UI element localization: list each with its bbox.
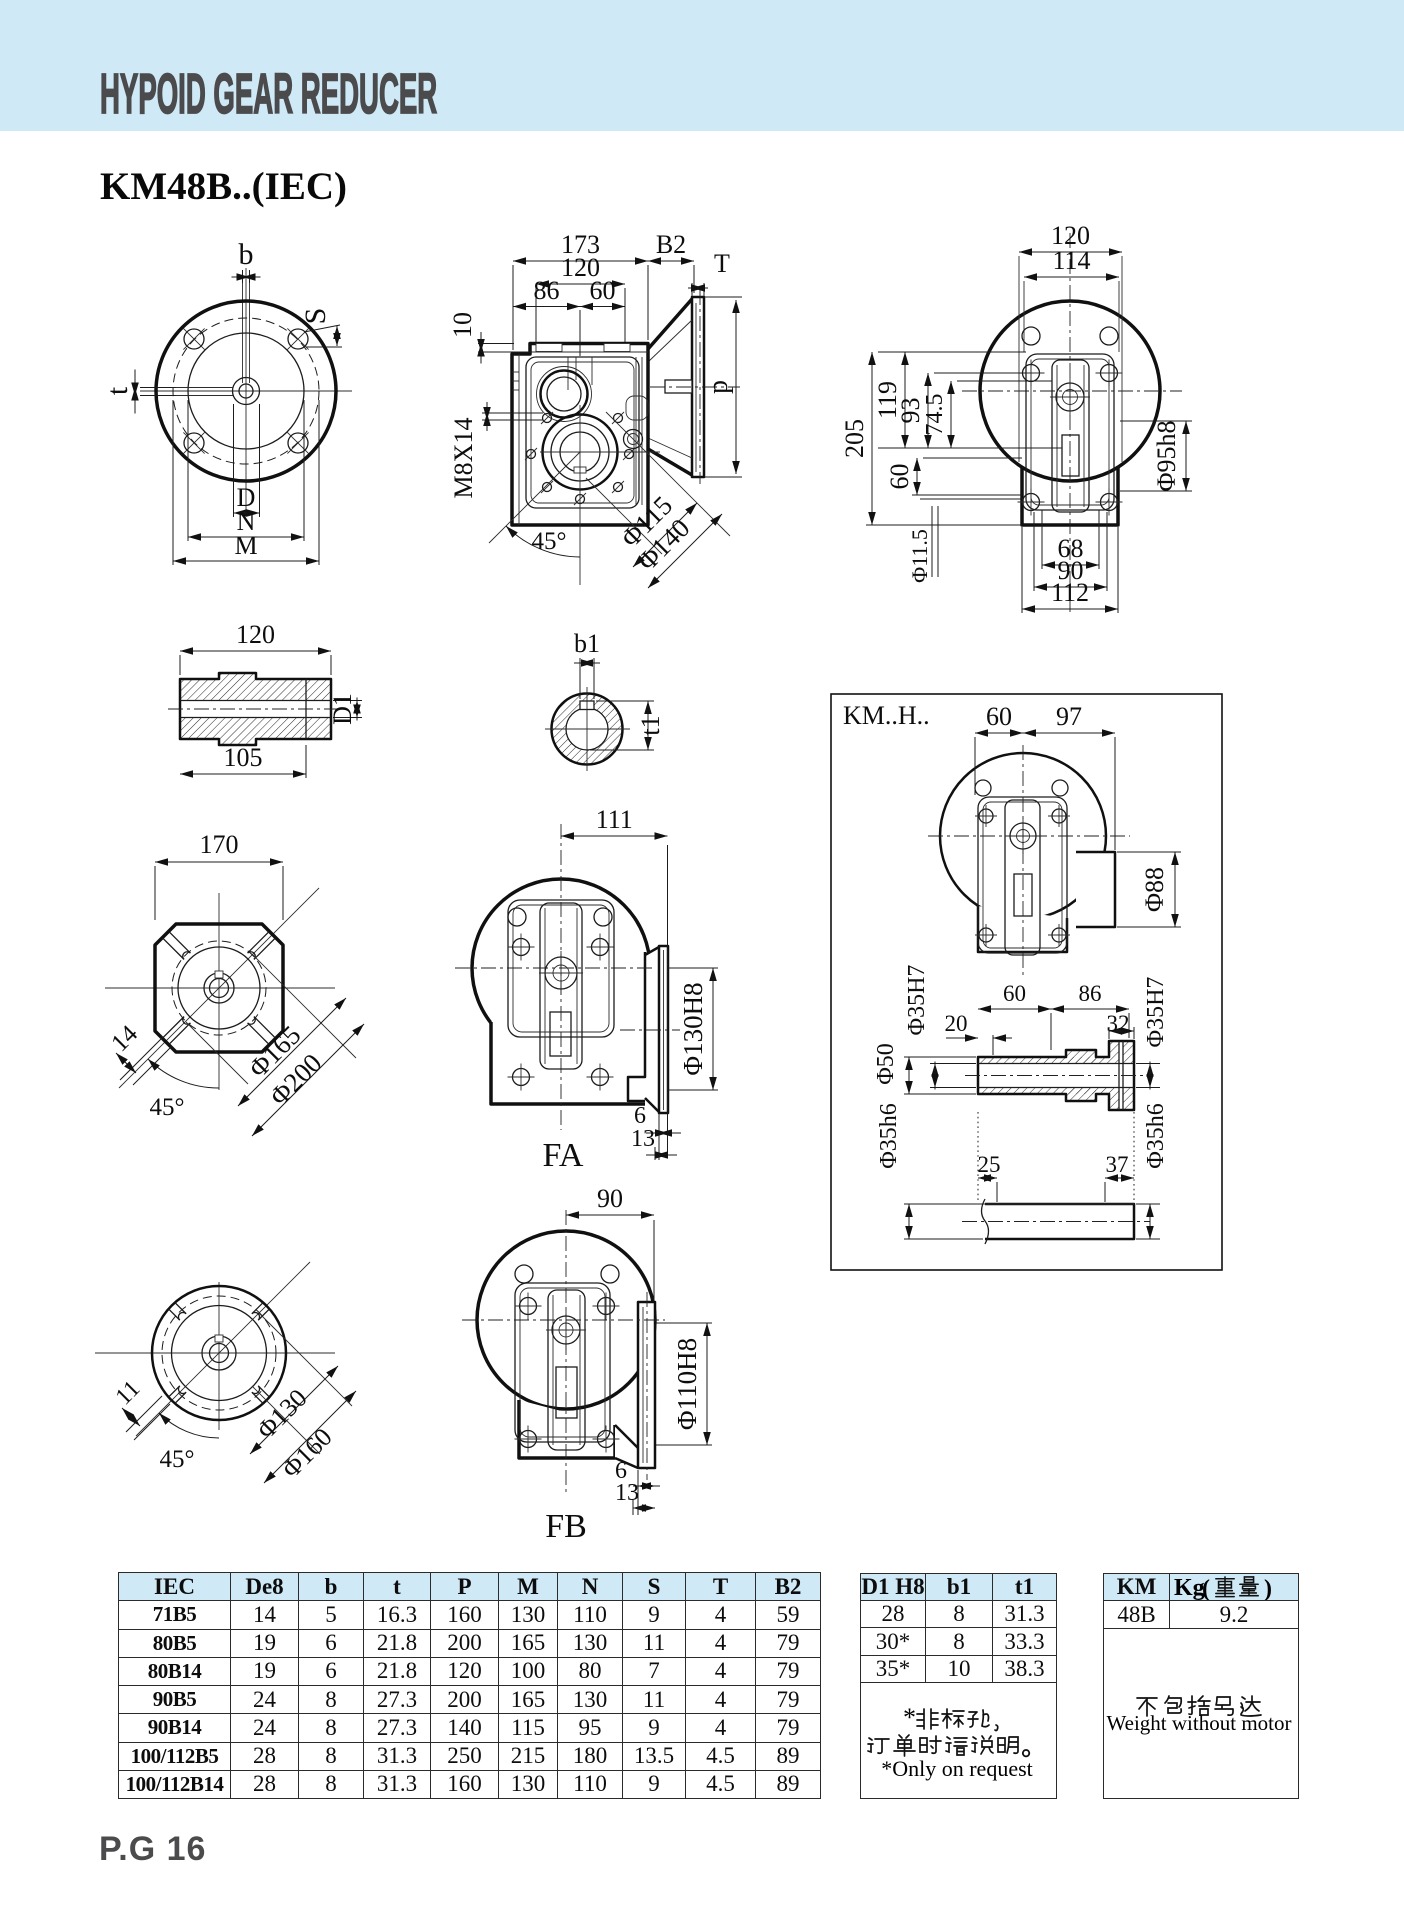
svg-text:): ) [1264, 1576, 1272, 1600]
svg-text:45°: 45° [532, 528, 567, 555]
svg-text:Φ160: Φ160 [276, 1422, 338, 1484]
svg-text:Φ35H7: Φ35H7 [904, 965, 930, 1036]
svg-text:*Only on request: *Only on request [881, 1756, 1033, 1781]
svg-text:T: T [714, 249, 730, 278]
svg-text:KM..H..: KM..H.. [843, 701, 930, 730]
svg-text:60: 60 [590, 276, 616, 305]
svg-text:Φ35H7: Φ35H7 [1143, 977, 1169, 1048]
svg-text:t1: t1 [636, 715, 665, 735]
svg-text:14: 14 [106, 1020, 143, 1057]
svg-text:90: 90 [597, 1184, 623, 1213]
svg-text:M8X14: M8X14 [449, 418, 478, 499]
svg-text:Φ95h8: Φ95h8 [1152, 420, 1181, 491]
svg-text:37: 37 [1106, 1152, 1129, 1177]
svg-text:S: S [299, 308, 332, 325]
svg-text:Φ35h6: Φ35h6 [876, 1103, 902, 1169]
svg-text:60: 60 [1003, 981, 1026, 1006]
svg-text:114: 114 [1052, 246, 1090, 275]
svg-text:Φ130H8: Φ130H8 [678, 982, 708, 1075]
svg-text:20: 20 [945, 1011, 968, 1036]
svg-text:*: * [903, 1703, 916, 1732]
svg-text:Φ88: Φ88 [1140, 867, 1169, 912]
svg-text:FB: FB [545, 1508, 587, 1545]
svg-text:11: 11 [111, 1376, 146, 1411]
svg-text:Kg: Kg [1174, 1575, 1205, 1600]
svg-text:105: 105 [224, 743, 263, 772]
svg-text:60: 60 [986, 702, 1012, 731]
svg-text:25: 25 [978, 1152, 1001, 1177]
svg-text:Φ50: Φ50 [873, 1043, 899, 1085]
svg-text:45°: 45° [150, 1094, 185, 1121]
svg-text:97: 97 [1056, 702, 1082, 731]
svg-text:t: t [101, 386, 134, 395]
svg-text:10: 10 [448, 312, 477, 338]
svg-text:p: p [703, 380, 734, 394]
svg-text:120: 120 [236, 620, 275, 649]
svg-text:205: 205 [840, 419, 869, 458]
svg-text:b1: b1 [574, 629, 600, 658]
svg-text:13: 13 [615, 1480, 639, 1506]
svg-text:45°: 45° [160, 1446, 195, 1473]
svg-text:112: 112 [1051, 578, 1089, 607]
svg-text:b: b [239, 238, 254, 271]
svg-text:86: 86 [534, 276, 560, 305]
svg-text:86: 86 [1079, 981, 1102, 1006]
svg-text:Φ110H8: Φ110H8 [672, 1338, 702, 1430]
svg-text:Weight without motor: Weight without motor [1107, 1711, 1292, 1735]
svg-text:Φ35h6: Φ35h6 [1143, 1103, 1169, 1169]
svg-text:93: 93 [896, 398, 925, 424]
svg-text:FA: FA [543, 1137, 584, 1174]
svg-text:170: 170 [200, 830, 239, 859]
svg-text:D1: D1 [328, 693, 357, 725]
svg-text:32: 32 [1107, 1011, 1130, 1036]
svg-text:74.5: 74.5 [922, 394, 948, 436]
svg-text:M: M [234, 531, 257, 560]
svg-text:Φ11.5: Φ11.5 [907, 529, 932, 583]
svg-text:111: 111 [596, 805, 633, 834]
svg-text:60: 60 [885, 464, 914, 490]
svg-text:(: ( [1202, 1576, 1210, 1600]
svg-text:13: 13 [631, 1126, 655, 1152]
svg-text:B2: B2 [656, 230, 686, 259]
